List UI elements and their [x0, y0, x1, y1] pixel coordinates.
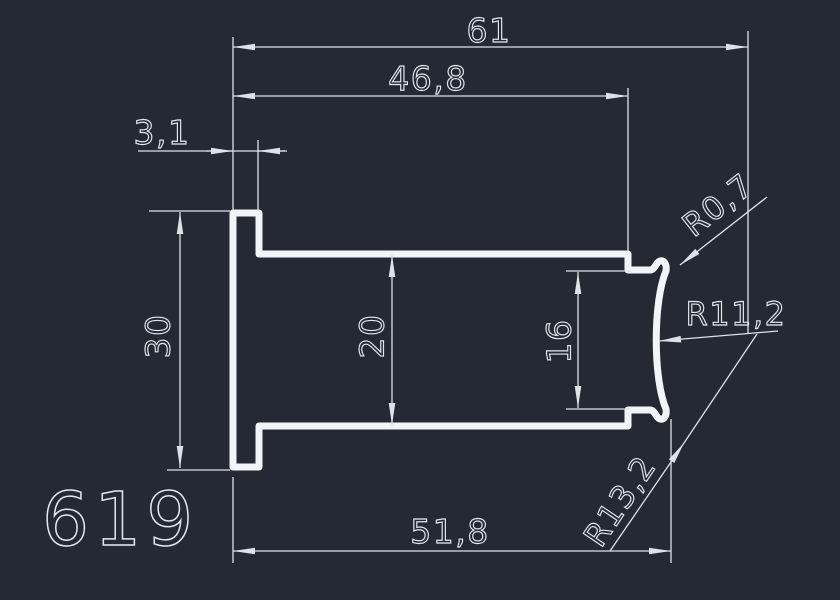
- dim-label-61: 61: [467, 11, 512, 50]
- part-number: 619: [42, 477, 198, 563]
- dim-label-468: 46,8: [388, 59, 467, 98]
- dim-label-31: 3,1: [134, 113, 191, 152]
- dim-label-20: 20: [353, 314, 392, 359]
- dim-label-16: 16: [540, 319, 579, 364]
- dim-label-518: 51,8: [410, 512, 489, 551]
- radius-label-r112: R11,2: [686, 295, 787, 333]
- cad-drawing-stage: 61 46,8 3,1 30 20: [0, 0, 840, 600]
- cad-canvas: 61 46,8 3,1 30 20: [0, 0, 840, 600]
- dim-label-30: 30: [139, 314, 178, 359]
